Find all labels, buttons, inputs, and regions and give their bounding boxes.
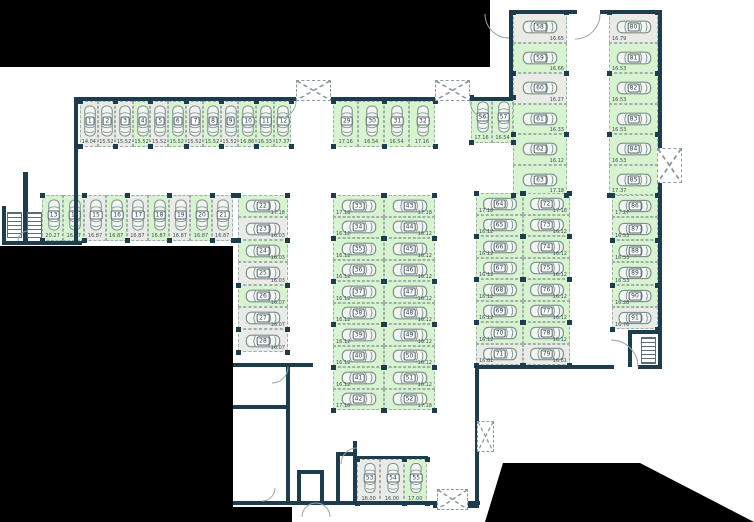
column-marker: [567, 234, 572, 239]
wall: [331, 97, 435, 101]
space-area-label: 16.12: [553, 251, 567, 257]
out-of-bounds-bottom-right: [485, 463, 754, 522]
stairs-icon: [27, 212, 42, 238]
space-area-label: 16.12: [418, 231, 432, 237]
space-area-label: 16.87: [109, 233, 123, 239]
parking-space-59[interactable]: 5916.66: [513, 43, 567, 74]
space-area-label: 16.87: [215, 233, 229, 239]
parking-space-5[interactable]: 515.52: [150, 101, 168, 147]
space-number-badge: 71: [493, 350, 506, 359]
parking-space-30[interactable]: 3016.54: [358, 101, 383, 147]
column-marker: [607, 132, 612, 137]
parking-space-46[interactable]: 4616.12: [384, 260, 435, 282]
space-area-label: 16.53: [612, 97, 626, 103]
column-marker: [521, 277, 526, 282]
wall: [600, 10, 662, 14]
wall: [2, 206, 6, 245]
space-area-label: 17.16: [474, 135, 488, 141]
column-marker: [167, 238, 172, 243]
column-marker: [82, 238, 87, 243]
parking-space-79[interactable]: 7916.81: [523, 344, 570, 366]
space-number-badge: 63: [534, 175, 547, 184]
column-marker: [331, 144, 336, 149]
gate-marker: [437, 489, 468, 510]
space-area-label: 16.07: [271, 345, 285, 351]
parking-space-78[interactable]: 7816.12: [523, 322, 570, 344]
parking-space-45[interactable]: 4516.12: [384, 238, 435, 260]
parking-space-25[interactable]: 2516.03: [238, 262, 288, 284]
gate-marker: [296, 80, 331, 101]
parking-space-58[interactable]: 5816.65: [513, 12, 567, 43]
space-area-label: 16.12: [336, 253, 350, 259]
parking-space-19[interactable]: 1916.87: [169, 195, 190, 241]
space-area-label: 16.12: [336, 382, 350, 388]
gate-marker: [657, 148, 682, 183]
space-area-label: 16.07: [271, 300, 285, 306]
space-number-badge: 81: [627, 53, 640, 62]
wall: [470, 97, 513, 101]
space-area-label: 16.87: [151, 233, 165, 239]
space-number-badge: 5: [156, 116, 165, 125]
parking-space-90[interactable]: 9016.28: [612, 285, 658, 307]
space-area-label: 16.03: [271, 278, 285, 284]
space-number-badge: 49: [403, 330, 416, 339]
column-marker: [184, 144, 189, 149]
parking-space-9[interactable]: 915.52: [221, 101, 239, 147]
column-marker: [511, 132, 516, 137]
space-area-label: 16.12: [553, 337, 567, 343]
parking-space-50[interactable]: 5016.12: [384, 346, 435, 368]
space-number-badge: 11: [259, 116, 272, 125]
space-number-badge: 4: [138, 116, 147, 125]
wall: [320, 474, 324, 503]
column-marker: [210, 193, 215, 198]
space-number-badge: 41: [352, 373, 365, 382]
space-number-badge: 55: [410, 474, 423, 483]
out-of-bounds-bottom-left: [0, 246, 233, 522]
space-area-label: 16.12: [418, 274, 432, 280]
space-number-badge: 12: [277, 116, 290, 125]
space-number-badge: 72: [540, 199, 553, 208]
parking-space-28[interactable]: 2816.07: [238, 329, 288, 351]
space-area-label: 16.12: [479, 294, 493, 300]
space-area-label: 16.33: [550, 127, 564, 133]
space-number-badge: 90: [629, 291, 642, 300]
parking-space-34[interactable]: 3416.12: [333, 217, 384, 239]
space-area-label: 16.12: [479, 337, 493, 343]
space-area-label: 17.18: [336, 210, 350, 216]
wall: [233, 405, 290, 409]
parking-space-16[interactable]: 1616.87: [106, 195, 127, 241]
column-marker: [331, 322, 336, 327]
parking-space-73[interactable]: 7316.12: [523, 215, 570, 237]
parking-space-49[interactable]: 4916.12: [384, 324, 435, 346]
space-number-badge: 56: [476, 112, 489, 121]
space-area-label: 16.12: [418, 253, 432, 259]
parking-space-7[interactable]: 715.52: [186, 101, 204, 147]
parking-space-89[interactable]: 8916.53: [612, 262, 658, 284]
parking-space-86[interactable]: 8617.27: [612, 195, 658, 217]
parking-space-57[interactable]: 5716.54: [492, 97, 513, 143]
column-marker: [285, 283, 290, 288]
parking-space-74[interactable]: 7416.12: [523, 236, 570, 258]
space-number-badge: 33: [352, 201, 365, 210]
column-marker: [236, 350, 241, 355]
space-area-label: 17.18: [418, 403, 432, 409]
space-number-badge: 69: [493, 307, 506, 316]
parking-space-76[interactable]: 7616.12: [523, 279, 570, 301]
space-number-badge: 2: [103, 116, 112, 125]
column-marker: [331, 193, 336, 198]
space-number-badge: 36: [352, 266, 365, 275]
parking-space-8[interactable]: 815.52: [203, 101, 221, 147]
space-number-badge: 65: [493, 221, 506, 230]
space-number-badge: 54: [387, 474, 400, 483]
column-marker: [285, 327, 290, 332]
column-marker: [474, 234, 479, 239]
column-marker: [289, 144, 294, 149]
parking-space-27[interactable]: 2716.07: [238, 307, 288, 329]
column-marker: [607, 71, 612, 76]
parking-space-17[interactable]: 1716.87: [127, 195, 148, 241]
parking-space-75[interactable]: 7516.12: [523, 258, 570, 280]
space-area-label: 16.12: [418, 382, 432, 388]
space-area-label: 16.54: [364, 139, 378, 145]
parking-space-23[interactable]: 2316.03: [238, 217, 288, 239]
column-marker: [474, 320, 479, 325]
column-marker: [382, 365, 387, 370]
space-area-label: 16.12: [553, 294, 567, 300]
space-number-badge: 91: [629, 314, 642, 323]
parking-space-2[interactable]: 215.52: [98, 101, 116, 147]
space-number-badge: 89: [629, 269, 642, 278]
space-area-label: 16.66: [550, 66, 564, 72]
column-marker: [382, 408, 387, 413]
space-area-label: 16.12: [336, 360, 350, 366]
parking-space-85[interactable]: 8517.37: [609, 165, 658, 196]
space-area-label: 15.52: [152, 139, 166, 145]
space-number-badge: 9: [226, 116, 235, 125]
space-number-badge: 10: [242, 116, 255, 125]
column-marker: [382, 279, 387, 284]
parking-space-51[interactable]: 5116.12: [384, 367, 435, 389]
parking-space-68[interactable]: 6816.12: [476, 279, 523, 301]
space-number-badge: 75: [540, 264, 553, 273]
space-number-badge: 7: [191, 116, 200, 125]
space-number-badge: 51: [403, 373, 416, 382]
space-area-label: 17.16: [339, 139, 353, 145]
column-marker: [567, 191, 572, 196]
space-area-label: 16.65: [550, 36, 564, 42]
space-area-label: 16.07: [271, 322, 285, 328]
space-area-label: 15.52: [222, 139, 236, 145]
column-marker: [382, 236, 387, 241]
space-number-badge: 43: [403, 201, 416, 210]
space-number-badge: 73: [540, 221, 553, 230]
out-of-bounds-top-left: [0, 0, 490, 67]
column-marker: [521, 320, 526, 325]
parking-space-37[interactable]: 3716.12: [333, 281, 384, 303]
parking-space-60[interactable]: 6016.27: [513, 73, 567, 104]
wall: [2, 241, 82, 245]
parking-space-52[interactable]: 5217.18: [384, 389, 435, 411]
wall: [233, 363, 313, 367]
space-number-badge: 22: [257, 202, 270, 211]
space-area-label: 16.03: [271, 255, 285, 261]
parking-space-24[interactable]: 2416.03: [238, 240, 288, 262]
parking-space-18[interactable]: 1816.87: [148, 195, 169, 241]
column-marker: [382, 322, 387, 327]
parking-space-82[interactable]: 8216.53: [609, 73, 658, 104]
parking-space-69[interactable]: 6916.12: [476, 301, 523, 323]
space-area-label: 16.54: [389, 139, 403, 145]
column-marker: [210, 238, 215, 243]
space-area-label: 16.03: [271, 233, 285, 239]
column-marker: [236, 238, 241, 243]
space-area-label: 16.53: [612, 66, 626, 72]
space-number-badge: 85: [627, 175, 640, 184]
column-marker: [474, 191, 479, 196]
parking-space-66[interactable]: 6616.12: [476, 236, 523, 258]
parking-space-40[interactable]: 4016.12: [333, 346, 384, 368]
space-number-badge: 60: [534, 84, 547, 93]
column-marker: [511, 193, 516, 198]
space-number-badge: 48: [403, 309, 416, 318]
column-marker: [331, 365, 336, 370]
parking-space-26[interactable]: 2616.07: [238, 285, 288, 307]
space-area-label: 16.12: [479, 315, 493, 321]
space-number-badge: 59: [534, 53, 547, 62]
column-marker: [382, 144, 387, 149]
space-number-badge: 8: [209, 116, 218, 125]
column-marker: [564, 132, 569, 137]
space-number-badge: 77: [540, 307, 553, 316]
column-marker: [82, 193, 87, 198]
space-number-badge: 29: [340, 116, 353, 125]
parking-space-47[interactable]: 4716.12: [384, 281, 435, 303]
parking-space-77[interactable]: 7716.12: [523, 301, 570, 323]
space-area-label: 16.12: [336, 296, 350, 302]
space-number-badge: 46: [403, 266, 416, 275]
parking-space-88[interactable]: 8816.53: [612, 240, 658, 262]
column-marker: [382, 193, 387, 198]
wall: [638, 365, 662, 369]
space-area-label: 16.53: [615, 255, 629, 261]
parking-space-53[interactable]: 5316.00: [357, 459, 380, 504]
parking-space-4[interactable]: 415.52: [133, 101, 151, 147]
parking-space-3[interactable]: 315.52: [115, 101, 133, 147]
space-area-label: 17.27: [615, 210, 629, 216]
space-number-badge: 40: [352, 352, 365, 361]
column-marker: [432, 322, 437, 327]
wall: [353, 441, 357, 503]
space-area-label: 16.12: [336, 339, 350, 345]
space-number-badge: 82: [627, 84, 640, 93]
column-marker: [125, 238, 130, 243]
space-area-label: 16.33: [258, 139, 272, 145]
space-area-label: 16.87: [194, 233, 208, 239]
parking-space-48[interactable]: 4816.12: [384, 303, 435, 325]
column-marker: [432, 279, 437, 284]
column-marker: [331, 279, 336, 284]
space-number-badge: 37: [352, 287, 365, 296]
wall: [78, 97, 296, 101]
space-number-badge: 52: [403, 395, 416, 404]
parking-space-32[interactable]: 3217.16: [409, 101, 434, 147]
space-area-label: 16.81: [479, 358, 493, 364]
space-area-label: 16.12: [418, 296, 432, 302]
space-number-badge: 18: [153, 210, 166, 219]
space-number-badge: 16: [111, 210, 124, 219]
column-marker: [610, 193, 615, 198]
parking-space-61[interactable]: 6116.33: [513, 104, 567, 135]
space-number-badge: 45: [403, 244, 416, 253]
space-number-badge: 76: [540, 285, 553, 294]
space-number-badge: 64: [493, 199, 506, 208]
space-number-badge: 44: [403, 223, 416, 232]
parking-space-55[interactable]: 5517.00: [404, 459, 427, 504]
parking-space-39[interactable]: 3916.12: [333, 324, 384, 346]
space-number-badge: 57: [497, 112, 510, 121]
parking-space-87[interactable]: 8716.53: [612, 217, 658, 239]
column-marker: [567, 320, 572, 325]
parking-space-35[interactable]: 3516.12: [333, 238, 384, 260]
column-marker: [610, 238, 615, 243]
space-area-label: 16.12: [553, 229, 567, 235]
column-marker: [167, 193, 172, 198]
parking-space-80[interactable]: 8016.79: [609, 12, 658, 43]
space-area-label: 16.87: [130, 233, 144, 239]
parking-space-38[interactable]: 3816.12: [333, 303, 384, 325]
parking-space-54[interactable]: 5416.00: [380, 459, 403, 504]
column-marker: [432, 365, 437, 370]
parking-space-10[interactable]: 1016.86: [238, 101, 256, 147]
space-area-label: 16.12: [553, 315, 567, 321]
column-marker: [219, 144, 224, 149]
space-number-badge: 62: [534, 145, 547, 154]
space-number-badge: 21: [217, 210, 230, 219]
column-marker: [78, 144, 83, 149]
parking-space-21[interactable]: 2116.87: [212, 195, 233, 241]
space-area-label: 20.27: [45, 233, 59, 239]
parking-space-1[interactable]: 114.04: [80, 101, 98, 147]
space-area-label: 17.18: [271, 210, 285, 216]
space-area-label: 16.87: [88, 233, 102, 239]
parking-space-67[interactable]: 6716.12: [476, 258, 523, 280]
column-marker: [331, 408, 336, 413]
space-number-badge: 87: [629, 224, 642, 233]
parking-space-56[interactable]: 5617.16: [471, 97, 492, 143]
space-number-badge: 15: [90, 210, 103, 219]
space-area-label: 17.37: [275, 139, 289, 145]
space-area-label: 15.52: [170, 139, 184, 145]
space-area-label: 15.52: [187, 139, 201, 145]
column-marker: [610, 327, 615, 332]
parking-space-20[interactable]: 2016.87: [190, 195, 211, 241]
parking-space-11[interactable]: 1116.33: [256, 101, 274, 147]
wall: [628, 330, 662, 334]
column-marker: [285, 238, 290, 243]
parking-space-33[interactable]: 3317.18: [333, 195, 384, 217]
space-area-label: 15.52: [205, 139, 219, 145]
parking-space-72[interactable]: 7217.18: [523, 193, 570, 215]
space-area-label: 16.53: [612, 158, 626, 164]
column-marker: [433, 144, 438, 149]
parking-space-81[interactable]: 8116.53: [609, 43, 658, 74]
space-number-badge: 50: [403, 352, 416, 361]
space-area-label: 15.52: [99, 139, 113, 145]
space-area-label: 16.81: [553, 358, 567, 364]
column-marker: [148, 144, 153, 149]
wall: [628, 334, 632, 367]
space-area-label: 17.18: [479, 208, 493, 214]
parking-space-41[interactable]: 4116.12: [333, 367, 384, 389]
column-marker: [236, 193, 241, 198]
space-number-badge: 31: [391, 116, 404, 125]
parking-space-62[interactable]: 6216.12: [513, 134, 567, 165]
space-number-badge: 83: [627, 114, 640, 123]
column-marker: [254, 144, 259, 149]
column-marker: [521, 191, 526, 196]
space-area-label: 16.12: [418, 339, 432, 345]
space-number-badge: 79: [540, 350, 553, 359]
parking-space-12[interactable]: 1217.37: [274, 101, 292, 147]
parking-space-84[interactable]: 8416.53: [609, 134, 658, 165]
parking-space-70[interactable]: 7016.12: [476, 322, 523, 344]
wall: [74, 97, 78, 245]
space-number-badge: 66: [493, 242, 506, 251]
space-area-label: 15.52: [134, 139, 148, 145]
parking-space-29[interactable]: 2917.16: [333, 101, 358, 147]
space-number-badge: 68: [493, 285, 506, 294]
parking-space-22[interactable]: 2217.18: [238, 195, 288, 217]
parking-space-71[interactable]: 7116.81: [476, 344, 523, 366]
column-marker: [511, 140, 516, 145]
space-area-label: 17.18: [553, 208, 567, 214]
space-number-badge: 84: [627, 145, 640, 154]
parking-space-83[interactable]: 8316.53: [609, 104, 658, 135]
column-marker: [285, 193, 290, 198]
space-number-badge: 6: [173, 116, 182, 125]
parking-space-42[interactable]: 4217.18: [333, 389, 384, 411]
column-marker: [567, 277, 572, 282]
stairs-icon: [641, 337, 656, 364]
space-area-label: 16.53: [612, 127, 626, 133]
space-number-badge: 61: [534, 114, 547, 123]
parking-space-36[interactable]: 3616.12: [333, 260, 384, 282]
parking-space-13[interactable]: 1320.27: [42, 195, 63, 241]
parking-space-91[interactable]: 9116.78: [612, 307, 658, 329]
space-number-badge: 80: [627, 23, 640, 32]
space-number-badge: 39: [352, 330, 365, 339]
wall: [475, 365, 614, 369]
space-area-label: 16.54: [495, 135, 509, 141]
wall: [509, 10, 577, 14]
space-number-badge: 74: [540, 242, 553, 251]
parking-space-31[interactable]: 3116.54: [384, 101, 409, 147]
column-marker: [564, 71, 569, 76]
space-area-label: 17.18: [336, 403, 350, 409]
parking-space-15[interactable]: 1516.87: [84, 195, 105, 241]
column-marker: [331, 236, 336, 241]
parking-space-65[interactable]: 6516.12: [476, 215, 523, 237]
parking-space-43[interactable]: 4317.18: [384, 195, 435, 217]
space-area-label: 15.52: [117, 139, 131, 145]
parking-space-44[interactable]: 4416.12: [384, 217, 435, 239]
space-number-badge: 28: [257, 336, 270, 345]
parking-space-6[interactable]: 615.52: [168, 101, 186, 147]
space-number-badge: 17: [132, 210, 145, 219]
